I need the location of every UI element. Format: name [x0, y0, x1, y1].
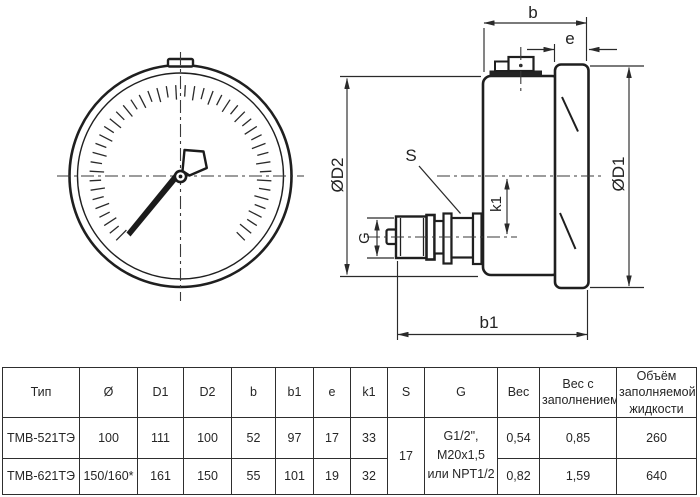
cell-type: ТМВ-521ТЭ: [3, 417, 80, 458]
spec-table: Тип Ø D1 D2 b b1 e k1 S G Вес Вес с запо…: [2, 367, 697, 495]
cell-b: 55: [232, 458, 276, 494]
dimension-label-od1: ØD1: [609, 157, 628, 192]
col-header-diameter: Ø: [80, 368, 138, 418]
col-header-e: e: [314, 368, 351, 418]
col-header-type: Тип: [3, 368, 80, 418]
col-header-volume: Объём заполняемой жидкости: [617, 368, 697, 418]
cell-e: 19: [314, 458, 351, 494]
col-header-b: b: [232, 368, 276, 418]
cell-b1: 101: [276, 458, 314, 494]
cell-type: ТМВ-621ТЭ: [3, 458, 80, 494]
cell-d1: 111: [138, 417, 184, 458]
cell-weight-filled: 1,59: [540, 458, 617, 494]
gauge-datasheet: b e ØD2 ØD1 k1 G S b1 Тип Ø D1 D2 b b1 e…: [0, 0, 700, 497]
cell-k1: 33: [351, 417, 388, 458]
cell-volume: 640: [617, 458, 697, 494]
cell-d2: 150: [184, 458, 232, 494]
dimension-label-s: S: [405, 146, 416, 165]
cell-d1: 161: [138, 458, 184, 494]
col-header-g: G: [425, 368, 498, 418]
table-row-tmv621: ТМВ-621ТЭ 150/160* 161 150 55 101 19 32 …: [3, 458, 697, 494]
dimension-label-e: e: [565, 29, 574, 48]
cell-b: 52: [232, 417, 276, 458]
cell-d2: 100: [184, 417, 232, 458]
col-header-b1: b1: [276, 368, 314, 418]
gauge-side-view: [367, 47, 601, 288]
col-header-weight-filled: Вес с заполнением: [540, 368, 617, 418]
cell-diameter: 150/160*: [80, 458, 138, 494]
cell-g-merged: G1/2", M20x1,5 или NPT1/2: [425, 417, 498, 494]
cell-weight-filled: 0,85: [540, 417, 617, 458]
col-header-d2: D2: [184, 368, 232, 418]
cell-weight: 0,54: [498, 417, 540, 458]
cell-weight: 0,82: [498, 458, 540, 494]
cell-k1: 32: [351, 458, 388, 494]
col-header-k1: k1: [351, 368, 388, 418]
dimension-label-od2: ØD2: [328, 158, 347, 193]
cell-volume: 260: [617, 417, 697, 458]
cell-e: 17: [314, 417, 351, 458]
col-header-weight: Вес: [498, 368, 540, 418]
dimension-label-k1: k1: [488, 196, 505, 212]
gauge-front-view: [57, 52, 304, 301]
table-row-tmv521: ТМВ-521ТЭ 100 111 100 52 97 17 33 17 G1/…: [3, 417, 697, 458]
cell-diameter: 100: [80, 417, 138, 458]
dimension-label-b1: b1: [480, 313, 499, 332]
cell-s-merged: 17: [388, 417, 425, 494]
connection-stem: [387, 214, 482, 265]
technical-drawing: b e ØD2 ØD1 k1 G S b1: [0, 0, 700, 364]
dimension-label-b: b: [528, 3, 537, 22]
leader-line-s: [419, 166, 461, 214]
hex-nut: [452, 218, 474, 258]
col-header-d1: D1: [138, 368, 184, 418]
col-header-s: S: [388, 368, 425, 418]
cell-b1: 97: [276, 417, 314, 458]
table-header-row: Тип Ø D1 D2 b b1 e k1 S G Вес Вес с запо…: [3, 368, 697, 418]
dimension-label-g: G: [356, 232, 373, 244]
filler-plug-side: [490, 57, 543, 76]
